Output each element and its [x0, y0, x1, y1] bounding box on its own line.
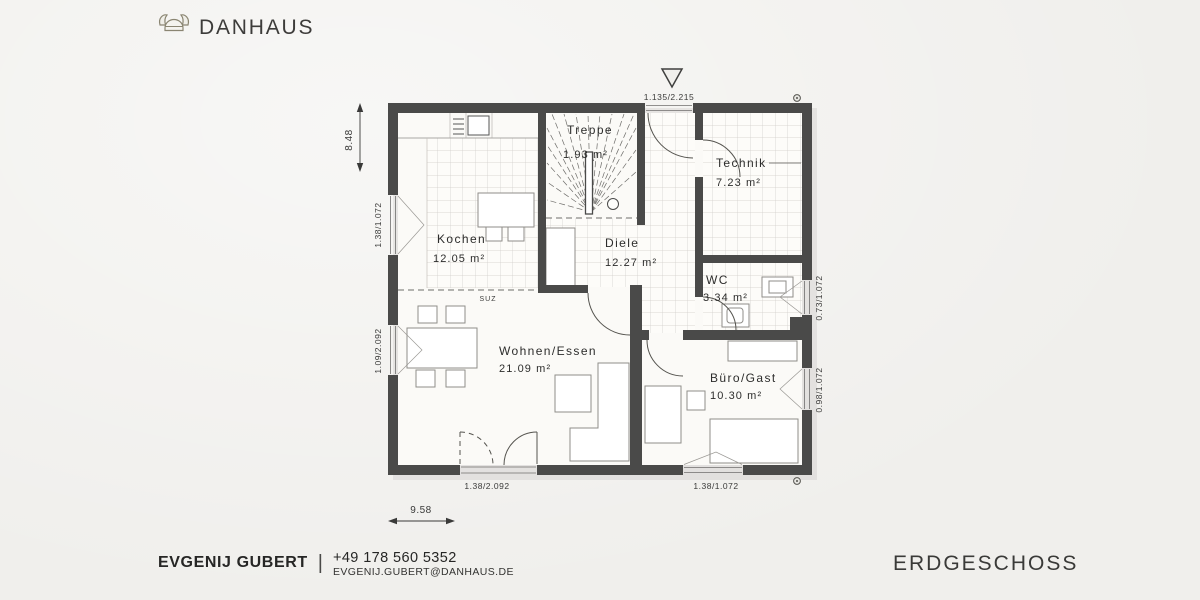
- room-area-diele: 12.27 m²: [605, 257, 657, 269]
- floor-title: ERDGESCHOSS: [893, 552, 1078, 576]
- floor-plan: 1.135/2.215 8.48 1.38/1.072 1.09/2.092 0…: [0, 0, 1200, 600]
- dim-living-window: 1.09/2.092: [373, 328, 383, 373]
- room-label-buero: Büro/Gast: [710, 371, 777, 385]
- room-area-treppe: 1.93 m²: [563, 149, 608, 161]
- dim-kitchen-window: 1.38/1.072: [373, 202, 383, 247]
- dim-entry-door: 1.135/2.215: [644, 92, 694, 102]
- room-label-technik: Technik: [716, 156, 767, 170]
- room-label-diele: Diele: [605, 236, 639, 250]
- sink-icon: [468, 116, 489, 135]
- room-area-buero: 10.30 m²: [710, 390, 762, 402]
- agent-email: EVGENIJ.GUBERT@DANHAUS.DE: [333, 567, 514, 578]
- dim-office-bottom-window: 1.38/1.072: [693, 481, 738, 491]
- room-label-wohnen: Wohnen/Essen: [499, 344, 597, 358]
- agent-name: EVGENIJ GUBERT: [158, 554, 308, 572]
- dim-overall-width: 9.58: [410, 505, 431, 516]
- separator: |: [318, 552, 323, 575]
- room-area-technik: 7.23 m²: [716, 177, 761, 189]
- entry-arrow-icon: [662, 69, 682, 87]
- room-label-kochen: Kochen: [437, 232, 486, 246]
- dim-wc-window: 0.73/1.072: [814, 275, 824, 320]
- contact-block: EVGENIJ GUBERT | +49 178 560 5352 EVGENI…: [158, 551, 514, 578]
- dim-overall-height: 8.48: [344, 129, 355, 150]
- agent-phone: +49 178 560 5352: [333, 551, 514, 566]
- dim-office-window: 0.98/1.072: [814, 367, 824, 412]
- room-area-kochen: 12.05 m²: [433, 253, 485, 265]
- suz-label: SUZ: [480, 296, 497, 303]
- room-area-wc: 3.34 m²: [703, 292, 748, 304]
- dim-terrace-door: 1.38/2.092: [464, 481, 509, 491]
- room-label-treppe: Treppe: [567, 123, 613, 137]
- room-label-wc: WC: [706, 273, 729, 287]
- room-area-wohnen: 21.09 m²: [499, 363, 551, 375]
